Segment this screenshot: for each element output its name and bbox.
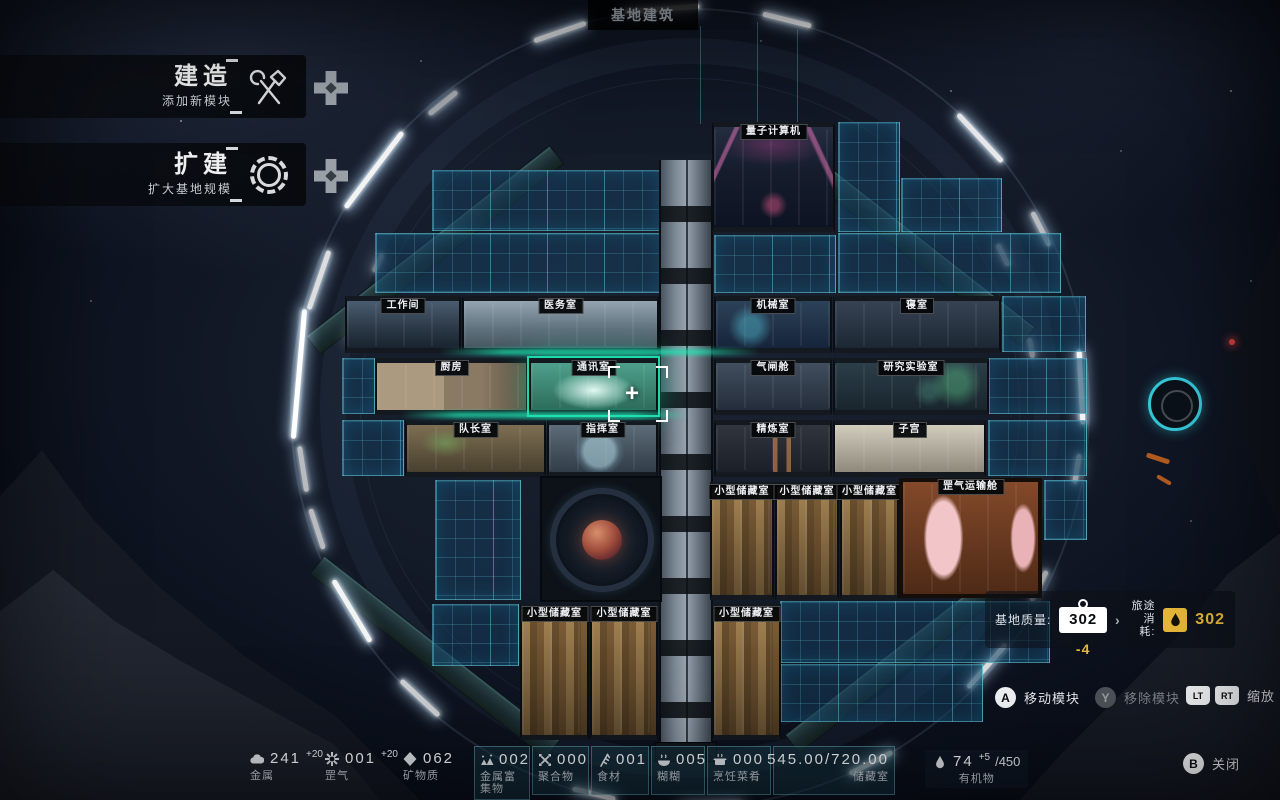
module-small-storage[interactable]: 小型储藏室: [520, 604, 589, 740]
mush-bowl-icon: [657, 752, 671, 767]
polymer-icon: [538, 752, 552, 767]
lt-button-icon: LT: [1186, 686, 1210, 705]
resource-mush: 005 糊糊: [651, 746, 705, 795]
module-label: 小型储藏室: [774, 484, 841, 500]
cable: [797, 30, 798, 124]
mountain-left: [0, 570, 380, 800]
module-label: 小型储藏室: [713, 606, 780, 622]
build-grid-panel[interactable]: [342, 358, 375, 414]
module-label: 小型储藏室: [709, 484, 776, 500]
wheel-hub: [540, 476, 662, 602]
module-label: 精炼室: [751, 422, 796, 438]
module-quantum-computer[interactable]: 量子计算机: [712, 122, 835, 232]
module-label: 队长室: [453, 422, 498, 438]
module-research-lab[interactable]: 研究实验室: [833, 358, 989, 415]
expand-gear-icon: [246, 152, 292, 198]
module-workshop[interactable]: 工作间: [345, 296, 461, 353]
module-machinery-room[interactable]: 机械室: [714, 296, 832, 353]
dpad-icon: [314, 159, 348, 193]
resource-food: 001 食材: [591, 746, 649, 795]
build-button-label: 建造: [162, 64, 232, 90]
module-label: 指挥室: [580, 422, 625, 438]
build-grid-panel[interactable]: [432, 604, 519, 666]
module-small-storage[interactable]: 小型储藏室: [712, 604, 781, 740]
orange-rim-light: [1146, 452, 1170, 464]
resource-metal-deposit: 002 金属富集物: [474, 746, 530, 800]
module-airlock[interactable]: 气闸舱: [714, 358, 832, 415]
module-refinery[interactable]: 精炼室: [714, 420, 832, 477]
mass-delta: -4: [1076, 636, 1090, 662]
module-small-storage[interactable]: 小型储藏室: [710, 482, 774, 600]
red-ember: [1229, 339, 1235, 345]
hint-zoom[interactable]: LT RT 缩放: [1186, 686, 1275, 705]
mass-weight-tag: 302 -4: [1059, 607, 1107, 633]
journey-cost-value: 302: [1195, 611, 1225, 629]
deposit-icon: [480, 752, 494, 767]
build-grid-panel[interactable]: [342, 420, 404, 476]
resource-metal: 241+20 金属: [250, 750, 323, 782]
hub-core-orb: [582, 520, 622, 560]
build-grid-panel[interactable]: [901, 178, 1002, 232]
cable: [700, 26, 701, 124]
module-label: 子宫: [893, 422, 927, 438]
build-tools-icon: [246, 64, 292, 110]
module-label: 小型储藏室: [591, 606, 658, 622]
orange-rim-light: [1156, 474, 1172, 485]
build-grid-panel[interactable]: [988, 358, 1087, 414]
expand-button[interactable]: 扩建 扩大基地规模: [0, 143, 306, 206]
selection-glow-top: [440, 349, 760, 355]
cable: [757, 22, 758, 124]
build-button-sublabel: 添加新模块: [162, 92, 232, 109]
module-womb[interactable]: 子宫: [833, 420, 986, 477]
build-button[interactable]: 建造 添加新模块: [0, 55, 306, 118]
resource-gas: 001+20 罡气: [325, 750, 398, 782]
mineral-diamond-icon: [403, 751, 418, 766]
module-label: 工作间: [381, 298, 426, 314]
build-grid-panel[interactable]: [988, 420, 1087, 476]
module-kitchen[interactable]: 厨房: [375, 358, 528, 415]
meal-pot-icon: [713, 752, 728, 767]
build-grid-panel[interactable]: [435, 480, 521, 600]
module-medical-room[interactable]: 医务室: [462, 296, 659, 353]
build-grid-panel[interactable]: [375, 233, 660, 293]
module-small-storage[interactable]: 小型储藏室: [840, 482, 899, 600]
fuel-droplet-icon: [1163, 608, 1187, 632]
base-mass-value: 302: [1069, 611, 1097, 628]
module-label: 寝室: [900, 298, 934, 314]
resource-cooked-meals: 000 烹饪菜肴: [707, 746, 771, 795]
metal-icon: [250, 751, 265, 766]
module-label: 研究实验室: [878, 360, 945, 376]
build-grid-panel[interactable]: [714, 235, 836, 293]
hint-remove-module[interactable]: Y 移除模块: [1095, 687, 1180, 708]
resource-minerals: 062 矿物质: [403, 750, 459, 782]
cursor-crosshair: +: [625, 380, 639, 408]
b-button-icon: B: [1183, 753, 1204, 774]
base-mass-label: 基地质量:: [995, 611, 1051, 628]
build-grid-panel[interactable]: [1044, 480, 1087, 540]
base-building-screen: 量子计算机 工作间 医务室 机械室 寝室 厨房 通讯室 气闸舱 研究实验室 队长…: [0, 0, 1280, 800]
journey-cost-label: 旅途 消耗:: [1128, 600, 1156, 639]
organics-droplet-icon: [933, 754, 948, 769]
module-label: 罡气运输舱: [937, 479, 1004, 495]
build-grid-panel[interactable]: [838, 122, 900, 232]
page-title: 基地建筑: [588, 0, 698, 30]
module-gas-transport-bay[interactable]: 罡气运输舱: [899, 478, 1042, 598]
resource-polymers: 000 聚合物: [532, 746, 589, 795]
build-grid-panel[interactable]: [838, 233, 1061, 293]
mountain-right-edge: [1210, 230, 1280, 530]
gas-gear-icon: [325, 751, 340, 766]
module-label: 小型储藏室: [836, 484, 903, 500]
a-button-icon: A: [995, 687, 1016, 708]
module-dormitory[interactable]: 寝室: [833, 296, 1001, 353]
mass-panel: 基地质量: 302 -4 › 旅途 消耗: 302: [985, 591, 1235, 648]
resource-organics: 74+5/450 有机物: [925, 750, 1028, 788]
build-grid-panel[interactable]: [432, 170, 660, 231]
storage-capacity: 545.00/720.00 储藏室: [773, 746, 895, 795]
module-label: 小型储藏室: [521, 606, 588, 622]
y-button-icon: Y: [1095, 687, 1116, 708]
module-label: 机械室: [751, 298, 796, 314]
dpad-icon: [314, 71, 348, 105]
module-small-storage[interactable]: 小型储藏室: [590, 604, 658, 740]
module-label: 气闸舱: [751, 360, 796, 376]
stars: [0, 0, 2, 2]
build-grid-panel[interactable]: [1002, 296, 1086, 352]
rim-target-marker: [1148, 377, 1202, 431]
build-grid-panel[interactable]: [780, 664, 983, 722]
elevator-shaft: [659, 160, 713, 756]
hint-close[interactable]: B 关闭: [1183, 753, 1240, 774]
module-label: 量子计算机: [740, 124, 807, 140]
expand-button-label: 扩建: [148, 152, 232, 178]
hub-ring: [550, 488, 654, 592]
expand-button-sublabel: 扩大基地规模: [148, 180, 232, 197]
hint-move-module[interactable]: A 移动模块: [995, 687, 1080, 708]
module-command-room[interactable]: 指挥室: [547, 420, 658, 477]
food-icon: [597, 752, 611, 767]
rt-button-icon: RT: [1215, 686, 1239, 705]
arrow-separator: ›: [1115, 612, 1120, 628]
module-label: 医务室: [538, 298, 583, 314]
module-captain-room[interactable]: 队长室: [405, 420, 546, 477]
module-label: 厨房: [435, 360, 469, 376]
module-small-storage[interactable]: 小型储藏室: [775, 482, 839, 600]
